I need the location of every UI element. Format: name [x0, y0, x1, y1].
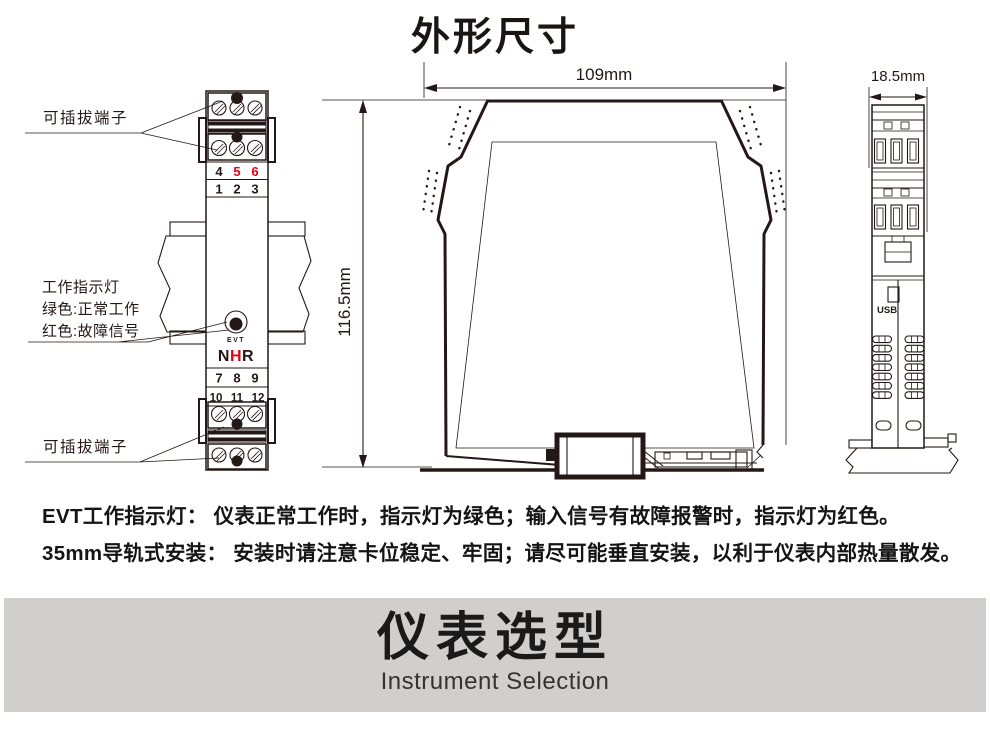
din-rail-right: [268, 222, 311, 344]
dimension-height: 116.5mm: [335, 100, 367, 468]
indicator-legend: 工作指示灯 绿色:正常工作 红色:故障信号: [42, 279, 140, 340]
terminal-number: 1: [215, 182, 222, 197]
terminal-number: 6: [251, 164, 258, 179]
terminal-number: 4: [215, 164, 223, 179]
width-dimension-label: 109mm: [576, 65, 633, 84]
brand-logo: NHR: [218, 348, 254, 365]
indicator-legend-line2: 绿色:正常工作: [42, 301, 140, 318]
extension-lines: [322, 62, 786, 467]
din-clamp: [546, 435, 643, 477]
note-evt-indicator: EVT工作指示灯： 仪表正常工作时，指示灯为绿色；输入信号有故障报警时，指示灯为…: [42, 499, 987, 529]
plug-terminal-label-top: 可插拔端子: [43, 109, 128, 127]
release-clip-left: [199, 118, 206, 162]
terminal-point-marker: [232, 456, 243, 467]
terminal-point-marker: [232, 132, 243, 143]
indicator-legend-line3: 红色:故障信号: [42, 322, 140, 340]
terminal-point-marker: [232, 419, 243, 430]
rail-latch: [644, 450, 761, 470]
evt-led-label: EVT: [227, 337, 245, 344]
width-dimension-label: 18.5mm: [871, 68, 925, 85]
indicator-legend-line1: 工作指示灯: [42, 279, 120, 296]
terminal-number: 7: [215, 371, 222, 386]
terminal-number: 9: [251, 371, 258, 386]
din-rail-left: [158, 222, 207, 344]
end-view-diagram: 18.5mm: [833, 55, 990, 485]
plug-terminal-label-bottom: 可插拔端子: [43, 438, 128, 456]
terminal-point-marker: [231, 92, 243, 104]
release-clip-left: [199, 399, 206, 443]
usb-label: USB: [877, 305, 897, 316]
selection-banner: 仪表选型 Instrument Selection: [4, 598, 986, 712]
dimension-width: 109mm: [424, 65, 786, 92]
release-clip-right: [268, 118, 275, 162]
banner-title: 仪表选型: [4, 598, 986, 668]
note-rail-mounting: 35mm导轨式安装： 安装时请注意卡位稳定、牢固；请尽可能垂直安装，以利于仪表内…: [42, 536, 987, 566]
terminal-number: 3: [251, 182, 258, 197]
terminal-number: 5: [233, 164, 240, 179]
height-dimension-label: 116.5mm: [335, 267, 354, 337]
module-side-profile: [420, 101, 771, 470]
front-view-diagram: 4 5 6 1 2 3 EVT NHR 7 8 9 10 11 12: [0, 85, 320, 480]
banner-subtitle: Instrument Selection: [4, 668, 986, 696]
terminal-number: 2: [233, 182, 240, 197]
side-view-diagram: 109mm 116.5mm: [315, 55, 815, 485]
page-title: 外形尺寸: [0, 6, 990, 62]
page-canvas: 外形尺寸: [0, 0, 990, 739]
release-clip-right: [268, 399, 275, 443]
terminal-number: 8: [233, 371, 240, 386]
module-inner-face: [456, 142, 754, 448]
module-end-body: USB: [872, 105, 924, 448]
